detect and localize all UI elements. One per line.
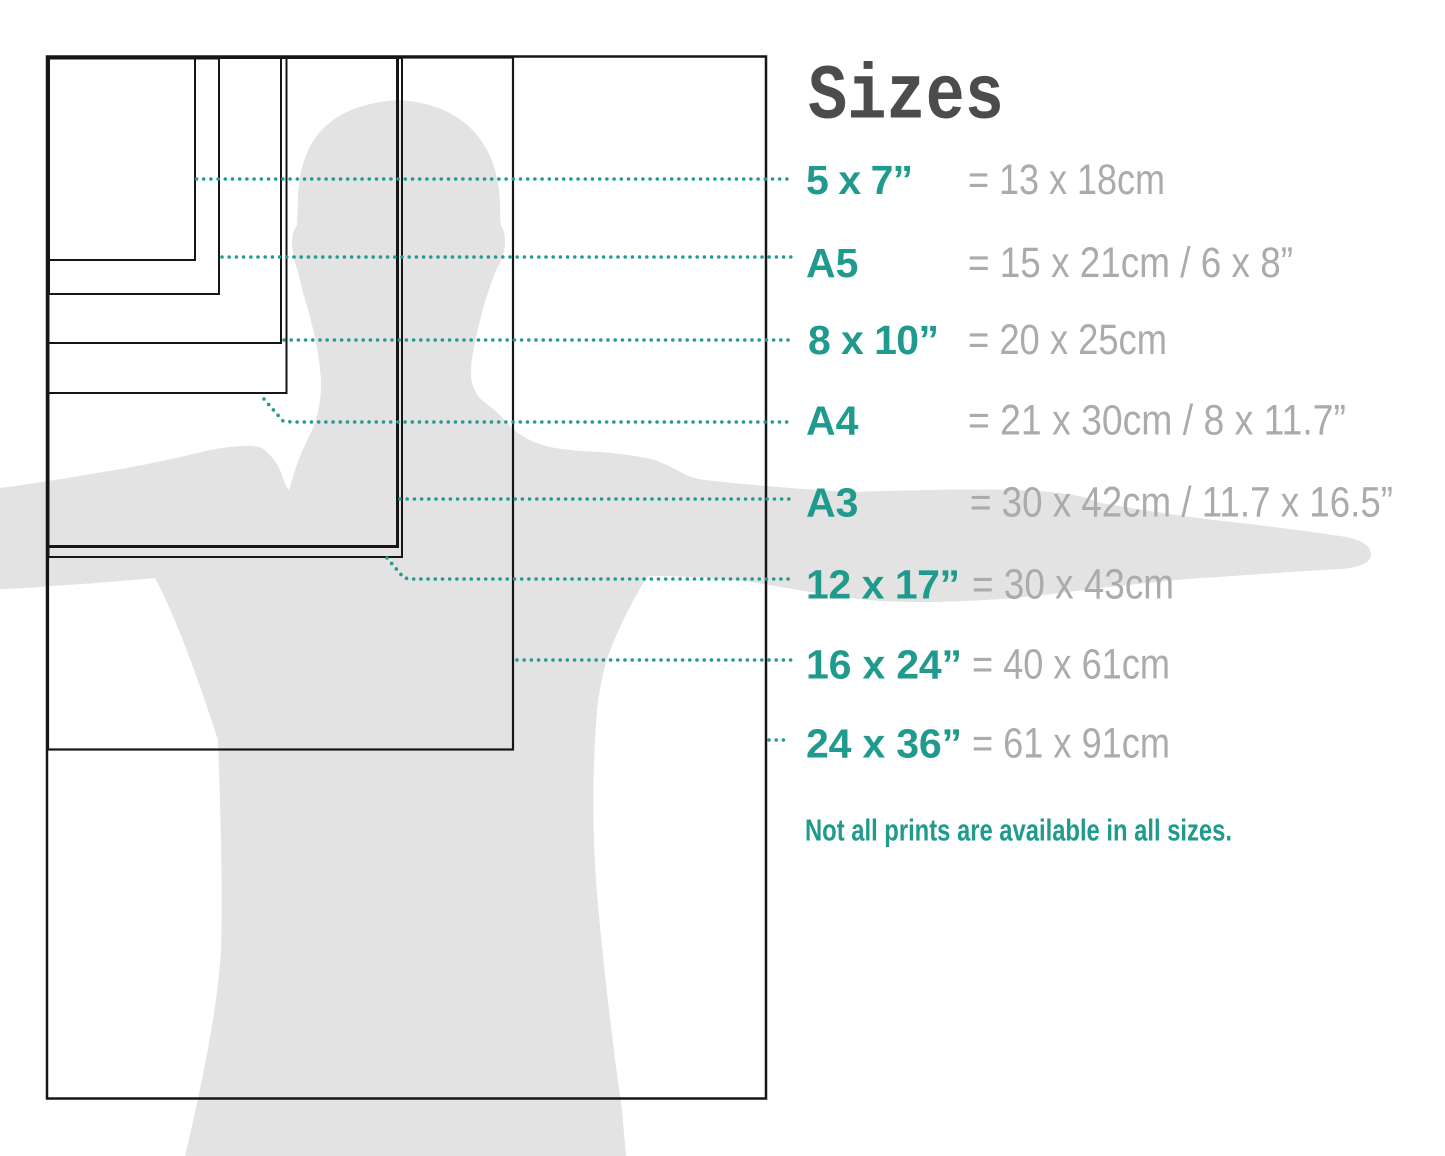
svg-text:= 15 x 21cm / 6 x 8”: = 15 x 21cm / 6 x 8” — [968, 239, 1293, 287]
svg-text:= 20 x 25cm: = 20 x 25cm — [968, 316, 1167, 364]
svg-text:16 x 24”: 16 x 24” — [806, 642, 962, 688]
svg-text:= 13 x 18cm: = 13 x 18cm — [968, 156, 1165, 204]
svg-text:A5: A5 — [806, 240, 858, 286]
svg-text:= 61 x 91cm: = 61 x 91cm — [972, 720, 1170, 768]
svg-text:= 30 x 43cm: = 30 x 43cm — [972, 561, 1174, 609]
svg-text:= 40 x 61cm: = 40 x 61cm — [972, 641, 1170, 689]
svg-text:= 30 x 42cm / 11.7 x 16.5”: = 30 x 42cm / 11.7 x 16.5” — [970, 479, 1393, 527]
svg-text:Sizes: Sizes — [808, 53, 1004, 141]
svg-text:= 21 x 30cm / 8 x 11.7”: = 21 x 30cm / 8 x 11.7” — [968, 397, 1346, 445]
svg-text:12 x 17”: 12 x 17” — [806, 562, 960, 608]
svg-text:A4: A4 — [806, 398, 859, 444]
svg-text:24 x 36”: 24 x 36” — [806, 721, 962, 767]
svg-text:A3: A3 — [806, 480, 858, 526]
svg-text:5 x 7”: 5 x 7” — [806, 157, 913, 203]
svg-text:Not all prints are available i: Not all prints are available in all size… — [805, 813, 1232, 848]
svg-text:8 x 10”: 8 x 10” — [808, 317, 939, 363]
